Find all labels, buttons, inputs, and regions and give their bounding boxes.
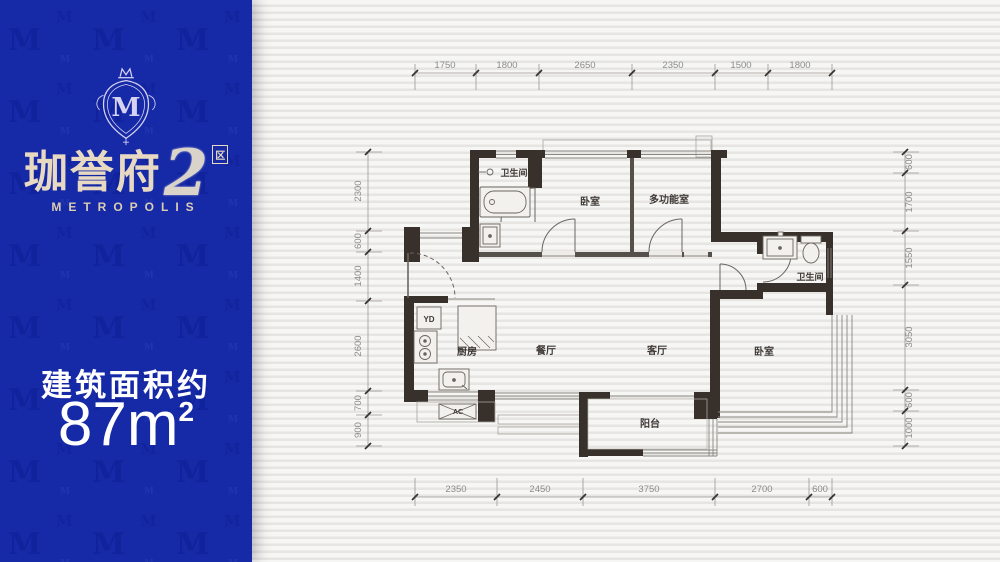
room-label-bathroom-1: 卫生间 (500, 167, 527, 178)
dim-right-3: 1550 (904, 247, 915, 268)
area-unit: m (127, 390, 179, 459)
dim-bottom-1: 2350 (445, 484, 466, 495)
room-label-bedroom-2: 卧室 (754, 345, 774, 358)
brand-panel: M M M M 珈誉府2 (0, 0, 252, 562)
area-number: 87 (58, 390, 127, 459)
room-label-multifunction: 多功能室 (649, 193, 689, 206)
dim-left-1: 2300 (353, 180, 364, 201)
dim-left-2: 600 (353, 233, 364, 249)
fixture-label-flue: YD (423, 315, 434, 324)
dim-left-6: 900 (353, 422, 364, 438)
dim-top-2: 1800 (496, 60, 517, 71)
room-label-bedroom-1: 卧室 (580, 195, 600, 208)
bay-window (718, 315, 852, 433)
dimension-lines (356, 64, 919, 506)
room-label-balcony: 阳台 (640, 417, 660, 430)
dim-bottom-3: 3750 (638, 484, 659, 495)
dim-left-4: 2600 (353, 335, 364, 356)
dim-bottom-4: 2700 (751, 484, 772, 495)
dim-bottom-2: 2450 (529, 484, 550, 495)
fixture-label-ac: AC (453, 409, 463, 416)
dim-right-6: 1000 (904, 417, 915, 438)
dim-left-5: 700 (353, 395, 364, 411)
room-label-living: 客厅 (646, 344, 667, 357)
area-value: 87m2 (0, 394, 252, 456)
area-unit-exponent: 2 (179, 396, 195, 427)
dim-left-3: 1400 (353, 265, 364, 286)
dim-top-4: 2350 (662, 60, 683, 71)
dim-right-2: 1700 (904, 191, 915, 212)
dim-top-3: 2650 (574, 60, 595, 71)
dim-right-1: 600 (904, 154, 915, 170)
dim-top-1: 1750 (434, 60, 455, 71)
room-label-kitchen: 厨房 (457, 345, 477, 358)
dim-top-6: 1800 (789, 60, 810, 71)
dim-bottom-5: 600 (812, 484, 828, 495)
brand-district-badge: 区 (212, 145, 228, 164)
brand-name-chinese: 珈誉府 (24, 148, 162, 197)
dim-right-5: 600 (904, 392, 915, 408)
crest-monogram-letter: M (111, 92, 140, 123)
brand-name-english: METROPOLIS (0, 200, 252, 214)
brand-name: 珈誉府2区 (0, 136, 252, 200)
room-label-dining: 餐厅 (535, 344, 556, 357)
dim-top-5: 1500 (730, 60, 751, 71)
room-label-bathroom-2: 卫生间 (796, 271, 823, 282)
floorplan-page: 卫生间 卧室 多功能室 卫生间 厨房 餐厅 客厅 卧室 阳台 YD AC (0, 0, 1000, 562)
dim-right-4: 3050 (904, 326, 915, 347)
